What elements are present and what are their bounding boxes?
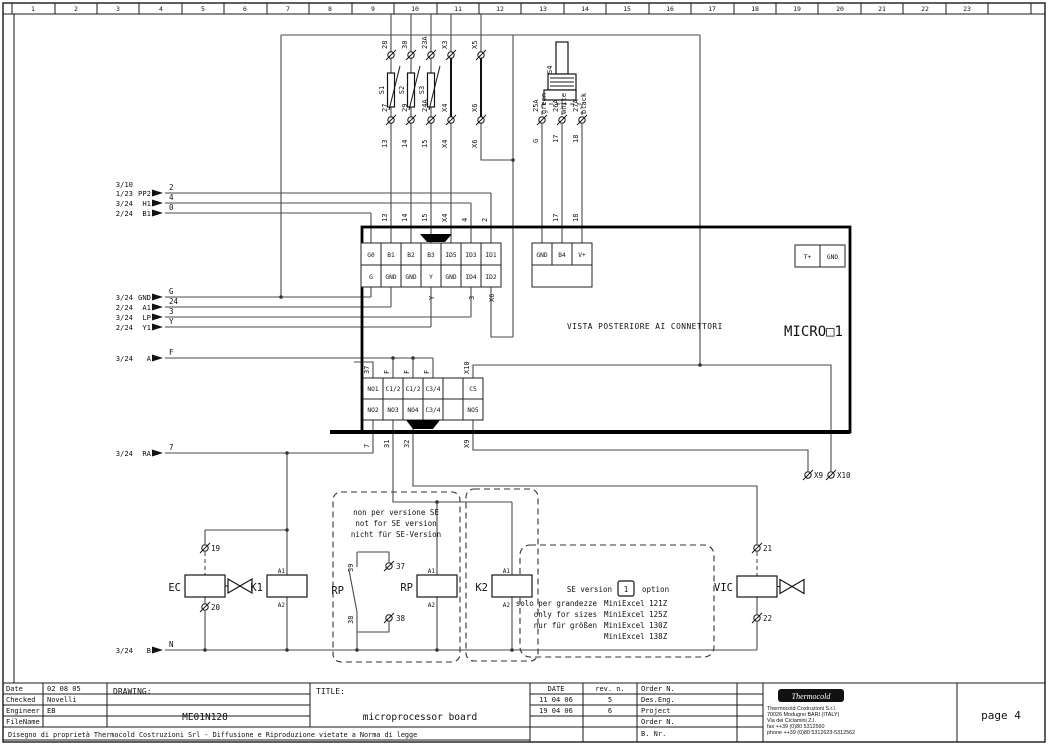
wire-tag: 3 (468, 296, 476, 300)
terminal-tag: X10 (837, 471, 851, 480)
terminal-tag: A2 (278, 602, 286, 609)
fuse-name: S3 (418, 86, 426, 94)
wire-tag: 32 (403, 440, 411, 448)
wire-tag: F (383, 370, 391, 374)
wire-color-label: green (540, 93, 548, 114)
terminal-tag: 21 (763, 544, 772, 553)
pin-label: ID1 (485, 252, 496, 259)
wire-tag: 37 (363, 366, 371, 374)
component-name: RP (400, 582, 413, 594)
ref-arrow-icon (152, 314, 163, 321)
pin-label: C5 (469, 386, 477, 393)
terminal-tag: 37 (396, 562, 405, 571)
rev-number: 5 (608, 696, 612, 704)
ref-label: B (147, 646, 151, 655)
ref-number: 1/23 (116, 189, 133, 198)
pin-label: B1 (387, 252, 395, 259)
ref-number: 2/24 (116, 209, 133, 218)
ref-label: A1 (142, 303, 151, 312)
wire-tag: 31 (383, 440, 391, 448)
terminal-tag: A2 (428, 602, 436, 609)
ruler-number: 10 (411, 5, 419, 13)
ref-label: H1 (142, 199, 151, 208)
sensor-s4: S4 green white black 25A 26A 27A G 17 18 (532, 42, 588, 143)
fuse-switches: S1 S2 S3 (378, 66, 440, 110)
ruler-number: 6 (243, 5, 247, 13)
micro-board-box: VISTA POSTERIORE AI CONNETTORI MICRO□1 G… (330, 227, 850, 432)
terminal-tag: 39 (347, 564, 355, 572)
ref-label: A (147, 354, 152, 363)
pin-label: Y (429, 274, 433, 281)
rev-date: 19 04 06 (539, 707, 573, 715)
sizes-model: MiniExcel 130Z (604, 621, 668, 630)
ref-arrow-icon (152, 210, 163, 217)
info-label: FileName (6, 718, 40, 726)
info-label: Engineer (6, 707, 40, 715)
terminal-tag: 38 (347, 616, 355, 624)
connector-d: NO1 C1/2 C1/2 C3/4 C5 NO2 NO3 NO4 C3/4 N… (363, 378, 483, 429)
terminal-tag: 38 (396, 614, 406, 623)
wire-tag: 23A (421, 36, 429, 49)
info-value: Novelli (47, 696, 77, 704)
drawing-number: ME01N128 (182, 712, 228, 723)
valve-icon (780, 580, 792, 594)
wire-tag: 28 (381, 41, 389, 49)
wire-tag: 27A (572, 99, 580, 112)
ref-label: LP (142, 313, 151, 322)
ruler-number: 1 (31, 5, 35, 13)
fuse-name: S2 (398, 86, 406, 94)
pin-label: T+ (804, 254, 812, 261)
pin-label: NO1 (367, 386, 378, 393)
ref-number: 3/24 (116, 646, 133, 655)
wire-tag: X4 (441, 104, 449, 112)
wire-tag: 2 (481, 218, 489, 222)
rev-date: 11 04 06 (539, 696, 573, 704)
wire-tag: 18 (572, 214, 580, 222)
se-version-label: SE version (567, 585, 612, 594)
wire-tag: G (532, 139, 540, 143)
pin-label: G0 (367, 252, 375, 259)
pin-label: C1/2 (386, 386, 401, 393)
ruler-number: 14 (581, 5, 589, 13)
ref-number: 3/10 (116, 180, 133, 189)
info-label: Checked (6, 696, 36, 704)
title-block: Date Checked Engineer FileName 02 08 05 … (3, 683, 1045, 742)
sensor-name: S4 (546, 66, 554, 74)
pin-label: V+ (578, 252, 586, 259)
sizes-note: only for sizes (534, 610, 597, 619)
ruler-number: 11 (454, 5, 462, 13)
terminal-tag: A1 (278, 568, 286, 575)
wire-tag: 27 (381, 104, 389, 112)
ruler-number: 5 (201, 5, 205, 13)
wire-tag: N (169, 640, 174, 649)
ref-number: 3/24 (116, 293, 133, 302)
info-value: EB (47, 707, 55, 715)
ruler-number: 13 (539, 5, 547, 13)
ruler-number: 7 (286, 5, 290, 13)
wire-terminal-symbols (200, 50, 836, 623)
pin-label: GND (536, 252, 547, 259)
wire-tag: 24 (169, 297, 179, 306)
ruler-number: 8 (328, 5, 332, 13)
info-value: 02 08 05 (47, 685, 81, 693)
ruler-number: 21 (878, 5, 886, 13)
ruler-number: 17 (708, 5, 716, 13)
pin-label: GND (445, 274, 456, 281)
pin-label: ID2 (485, 274, 496, 281)
company-line: phone ++39 (0)80 5312623-5312562 (767, 730, 855, 736)
ref-arrow-icon (152, 324, 163, 331)
pin-label: NO3 (387, 407, 398, 414)
ref-number: 3/24 (116, 313, 133, 322)
wire-tag: 24A (421, 99, 429, 112)
wire-tag: X6 (488, 294, 496, 302)
wire-tag: 17 (552, 135, 560, 143)
ref-arrow-icon (152, 294, 163, 301)
ruler-number: 16 (666, 5, 674, 13)
wire-tag: 4 (169, 193, 174, 202)
wire-tag: F (403, 370, 411, 374)
sizes-model: MiniExcel 121Z (604, 599, 668, 608)
connector-key (406, 420, 440, 429)
wire-tag: X9 (463, 440, 471, 448)
pin-label: G (369, 274, 373, 281)
wire-tag: 7 (169, 443, 174, 452)
terminal-tag: 22 (763, 614, 772, 623)
wire-tag: 30 (401, 41, 409, 49)
terminal-tag: 19 (211, 544, 220, 553)
ruler-number: 9 (371, 5, 375, 13)
ruler-number: 23 (963, 5, 971, 13)
sizes-model: MiniExcel 138Z (604, 632, 668, 641)
ref-label: B1 (142, 209, 151, 218)
ruler-number: 12 (496, 5, 504, 13)
valve-icon (792, 580, 804, 594)
ref-label: PP2 (138, 189, 151, 198)
wire-tag: 15 (421, 214, 429, 222)
page-number: page 4 (981, 709, 1021, 722)
component-name: K2 (475, 582, 488, 594)
connector-a: G0 B1 B2 B3 ID5 ID3 ID1 G GND GND Y GND … (361, 234, 501, 287)
wire-color-label: white (560, 93, 568, 114)
wire-tag: 26A (552, 99, 560, 112)
note-line: nicht für SE-Version (351, 530, 441, 539)
pin-label: NO2 (367, 407, 378, 414)
wire-tag: X3 (441, 41, 449, 49)
order-label: Des.Eng. (641, 696, 675, 704)
wire-tag: 13 (381, 140, 389, 148)
pin-label: GND (385, 274, 396, 281)
sizes-note: nur für größen (534, 621, 597, 630)
pin-label: ID3 (465, 252, 476, 259)
info-label: Date (6, 685, 23, 693)
wire-tag: Y (169, 317, 174, 326)
wire-tag: X5 (471, 41, 479, 49)
terminal-tag: A1 (503, 568, 511, 575)
board-name: MICRO□1 (784, 324, 843, 340)
ref-arrow-icon (152, 450, 163, 457)
ref-label: GND (138, 293, 151, 302)
ref-arrow-icon (152, 355, 163, 362)
ref-arrow-icon (152, 190, 163, 197)
ref-label: RA (142, 449, 151, 458)
fuse-name: S1 (378, 86, 386, 94)
ref-number: 2/24 (116, 303, 133, 312)
ruler-numbers: 1 2 3 4 5 6 7 8 9 10 11 12 13 14 15 16 1… (31, 5, 971, 13)
wire-tag: 2 (169, 183, 174, 192)
ref-number: 2/24 (116, 323, 133, 332)
wire-tag: 17 (552, 214, 560, 222)
ruler-number: 22 (921, 5, 929, 13)
rev-header: DATE (548, 685, 565, 693)
terminal-tag: 20 (211, 603, 221, 612)
ref-arrow-icon (152, 200, 163, 207)
pin-label: C1/2 (406, 386, 421, 393)
wire-tag: Y (428, 295, 436, 300)
terminal-tag: X9 (814, 471, 823, 480)
drawing-frame (3, 3, 1045, 742)
wire-tag: F (169, 348, 174, 357)
wire-tag: F (423, 370, 431, 374)
ruler-number: 20 (836, 5, 844, 13)
component-name: RP (331, 585, 344, 597)
pin-label: ID4 (465, 274, 476, 281)
ref-number: 3/24 (116, 354, 133, 363)
wire-tag: 15 (421, 140, 429, 148)
wire-tag: G (169, 287, 174, 296)
order-label: Order N. (641, 685, 675, 693)
copyright-note: Disegno di proprietà Thermocold Costruzi… (8, 731, 417, 739)
wire-tag: 29 (401, 104, 409, 112)
component-name: EC (168, 582, 181, 594)
pin-label: GND (827, 254, 838, 261)
terminal-tag: A1 (428, 568, 436, 575)
pin-label: ID5 (445, 252, 456, 259)
wire-tag: X4 (441, 214, 449, 222)
board-caption: VISTA POSTERIORE AI CONNETTORI (567, 322, 723, 331)
ref-number: 3/24 (116, 199, 133, 208)
wire-tag: 7 (363, 444, 371, 448)
ruler-number: 19 (793, 5, 801, 13)
wire-tag: 25A (532, 99, 540, 112)
wire-network (165, 14, 831, 652)
order-label: Order N. (641, 718, 675, 726)
ruler-number: 4 (159, 5, 163, 13)
se-version-value: 1 (624, 585, 629, 594)
pin-label: GND (405, 274, 416, 281)
connector-key (420, 234, 452, 242)
wire-tag: X6 (471, 104, 479, 112)
company-logo-text: Thermocold (792, 692, 832, 701)
ref-arrow-icon (152, 647, 163, 654)
wire-tag: X6 (471, 140, 479, 148)
pin-label: NO4 (407, 407, 418, 414)
pin-label: B3 (427, 252, 435, 259)
sizes-model: MiniExcel 125Z (604, 610, 668, 619)
wire-color-label: black (580, 92, 588, 114)
wire-tag: 3 (169, 307, 174, 316)
connector-c: T+ GND (795, 245, 845, 267)
note-line: not for SE version (355, 519, 436, 528)
pin-label: C3/4 (426, 407, 441, 414)
ruler-number: 3 (116, 5, 120, 13)
wire-tag: X4 (441, 140, 449, 148)
order-label: Project (641, 707, 671, 715)
connector-b: GND B4 V+ (532, 243, 592, 287)
pin-label: NO5 (467, 407, 478, 414)
ruler-number: 15 (623, 5, 631, 13)
ref-label: Y1 (142, 323, 151, 332)
title-label: TITLE: (316, 687, 345, 696)
wire-tag: 13 (381, 214, 389, 222)
component-name: K1 (250, 582, 263, 594)
se-option-label: option (642, 585, 669, 594)
wire-tag: 14 (401, 214, 409, 222)
order-label: B. Nr. (641, 730, 666, 738)
ruler-number: 18 (751, 5, 759, 13)
schematic-page: 1 2 3 4 5 6 7 8 9 10 11 12 13 14 15 16 1… (0, 0, 1048, 745)
relays-and-valves: EC 19 20 K1 A1 A2 RP 39 38 37 38 RP A1 A… (168, 544, 804, 624)
pin-label: C3/4 (426, 386, 441, 393)
terminal-tag: A2 (503, 602, 511, 609)
wire-tag: 14 (401, 140, 409, 148)
sizes-note: solo per grandezze (516, 599, 598, 608)
rev-header: rev. n. (595, 685, 625, 693)
rev-number: 6 (608, 707, 612, 715)
drawing-label: DRAWING: (113, 687, 152, 696)
ruler-number: 2 (74, 5, 78, 13)
wire-tag: X10 (463, 361, 471, 374)
valve-icon (228, 579, 240, 593)
wire-tag: 4 (461, 218, 469, 222)
ref-arrow-icon (152, 304, 163, 311)
wire-tag: 0 (169, 203, 174, 212)
ref-number: 3/24 (116, 449, 133, 458)
drawing-title: microprocessor board (363, 712, 477, 723)
pin-label: B2 (407, 252, 415, 259)
component-name: VIC (714, 582, 733, 594)
wire-tag: 18 (572, 135, 580, 143)
pin-label: B4 (558, 252, 566, 259)
note-line: non per versione SE (353, 508, 439, 517)
